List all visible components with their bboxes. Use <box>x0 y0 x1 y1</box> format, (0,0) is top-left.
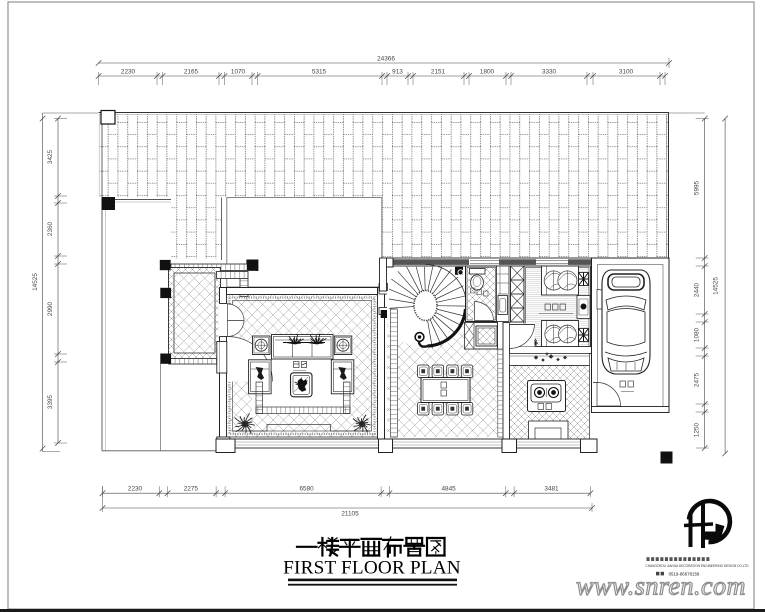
svg-text:14525: 14525 <box>32 273 39 291</box>
svg-text:3395: 3395 <box>47 394 54 409</box>
svg-text:3100: 3100 <box>619 69 634 76</box>
svg-text:5315: 5315 <box>312 69 327 76</box>
svg-text:2230: 2230 <box>128 486 143 493</box>
svg-text:2275: 2275 <box>184 486 199 493</box>
svg-text:21105: 21105 <box>341 511 359 518</box>
svg-text:FIRST FLOOR PLAN: FIRST FLOOR PLAN <box>283 558 461 579</box>
svg-text:2360: 2360 <box>47 221 54 236</box>
svg-text:3481: 3481 <box>544 486 559 493</box>
svg-text:1070: 1070 <box>231 69 246 76</box>
svg-text:2230: 2230 <box>121 69 136 76</box>
svg-text:1080: 1080 <box>694 327 701 342</box>
svg-text:1800: 1800 <box>480 69 495 76</box>
svg-text:5995: 5995 <box>694 180 701 195</box>
svg-text:913: 913 <box>392 69 403 76</box>
svg-text:2165: 2165 <box>184 69 199 76</box>
svg-text:24366: 24366 <box>377 56 395 63</box>
svg-text:2440: 2440 <box>694 282 701 297</box>
svg-text:3425: 3425 <box>47 149 54 164</box>
svg-text:CHANGZHOU JIAHUA DECORATION EN: CHANGZHOU JIAHUA DECORATION ENGINEERING … <box>645 564 749 568</box>
svg-text:4845: 4845 <box>441 486 456 493</box>
svg-text:www.snren.com: www.snren.com <box>576 572 746 601</box>
svg-text:6580: 6580 <box>299 486 314 493</box>
svg-text:14525: 14525 <box>713 277 720 295</box>
svg-text:2990: 2990 <box>47 301 54 316</box>
svg-text:2151: 2151 <box>431 69 446 76</box>
svg-text:1250: 1250 <box>694 422 701 437</box>
svg-text:3330: 3330 <box>542 69 557 76</box>
svg-text:2475: 2475 <box>694 372 701 387</box>
